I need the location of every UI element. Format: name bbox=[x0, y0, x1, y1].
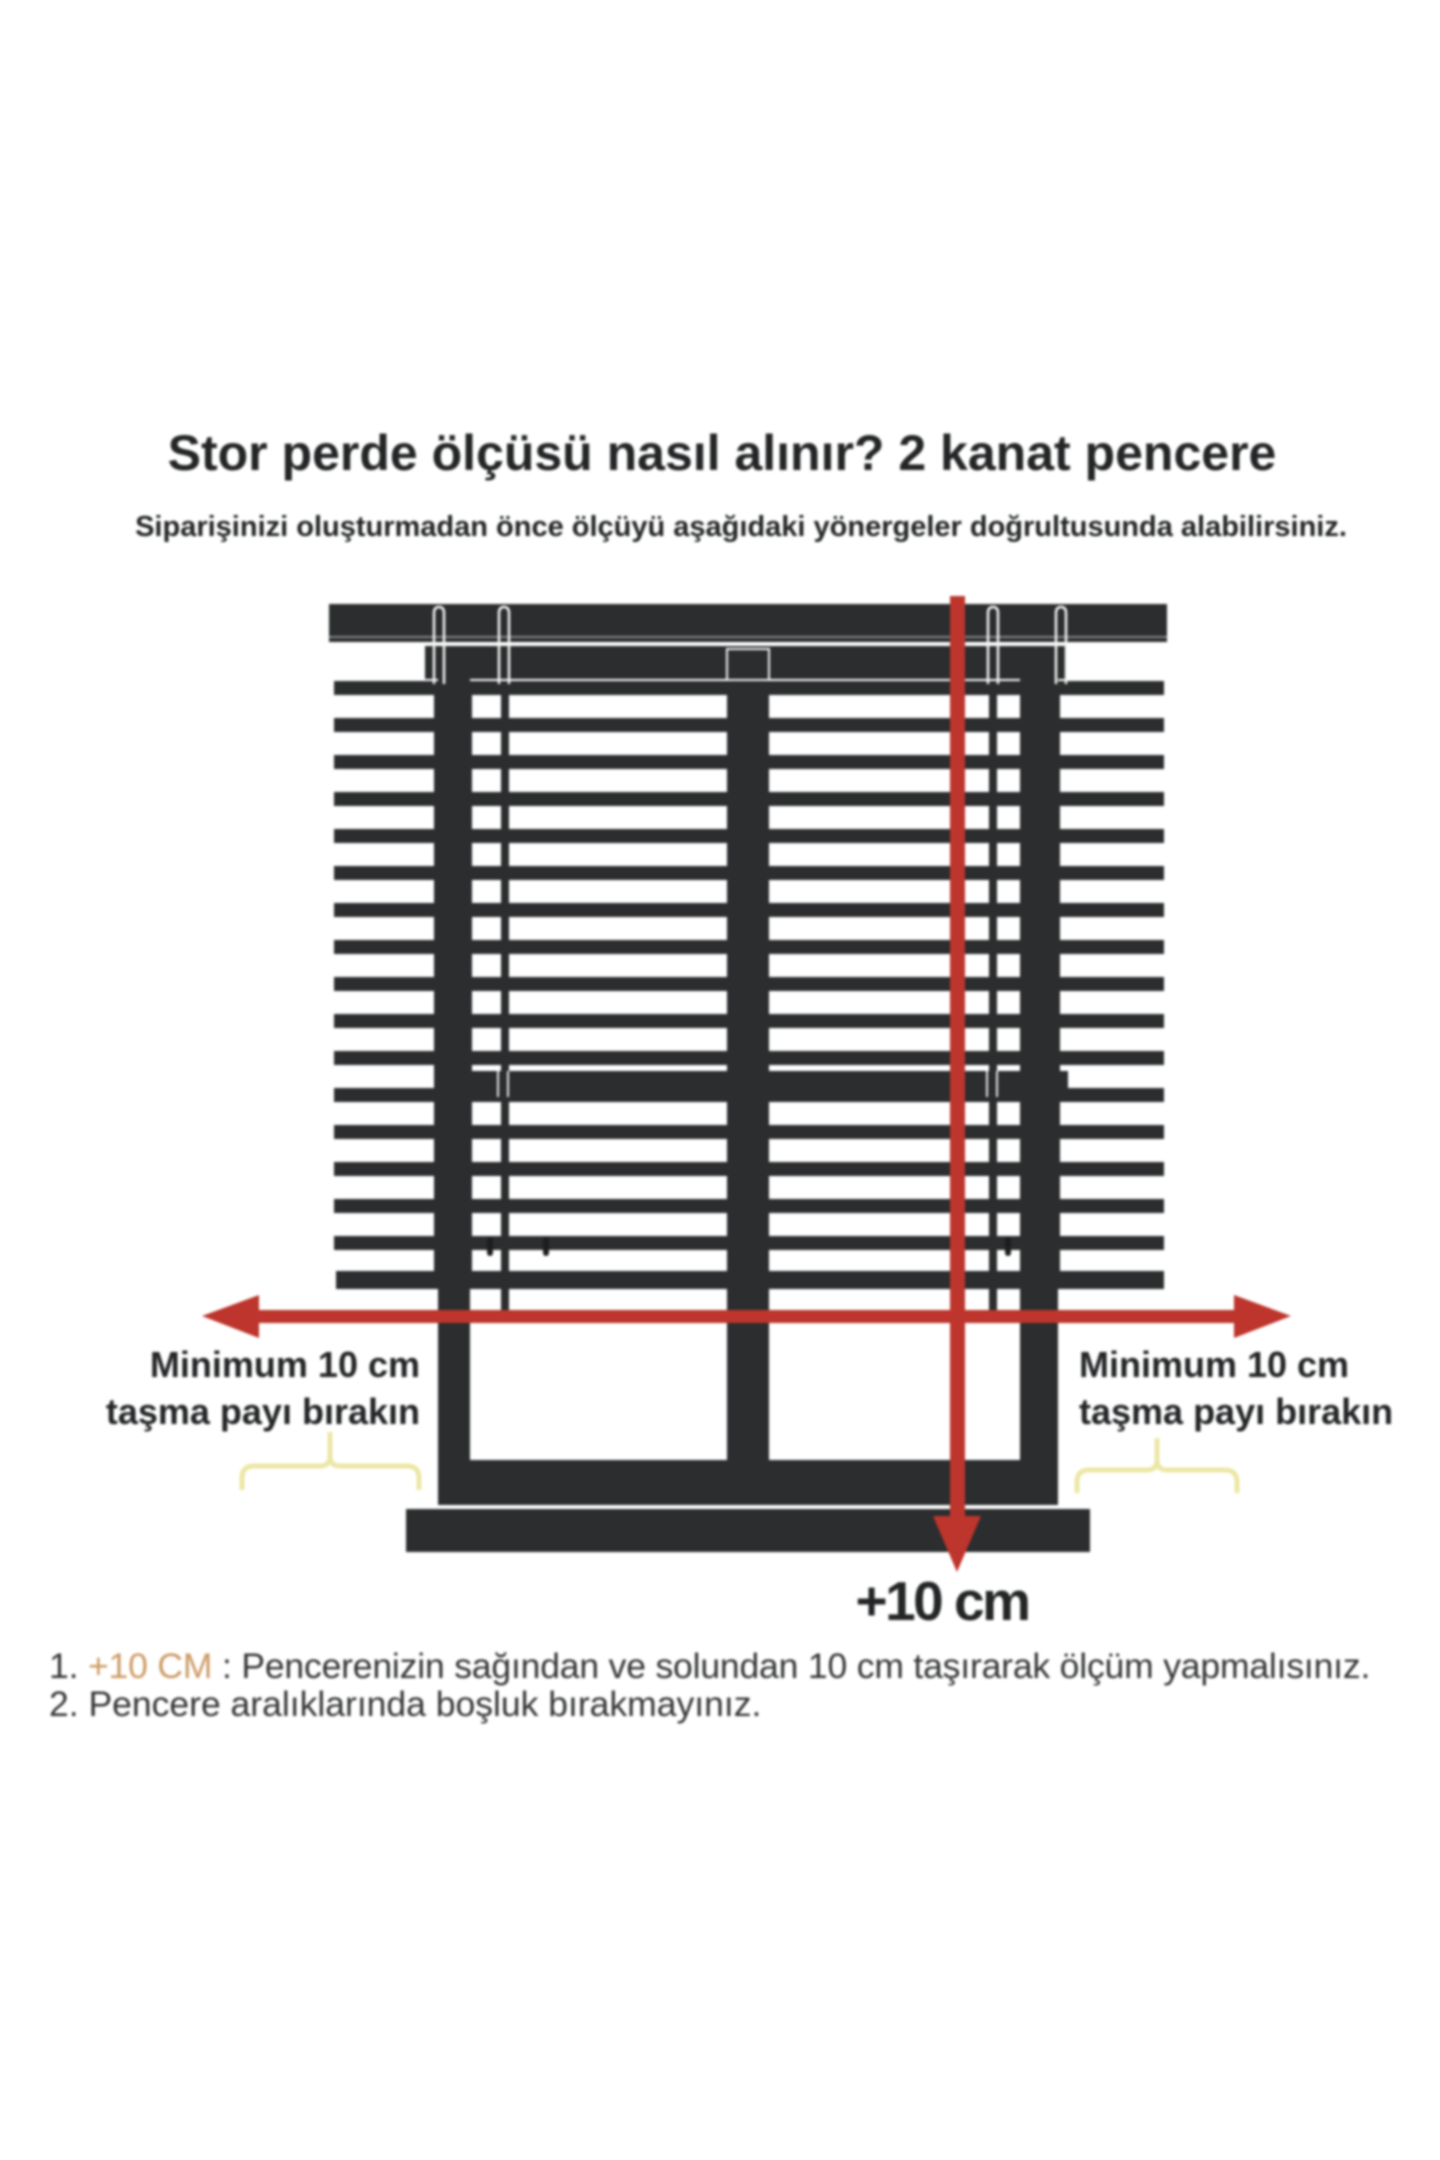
svg-text:taşma payı bırakın: taşma payı bırakın bbox=[1079, 1391, 1393, 1432]
svg-text:2. Pencere aralıklarında boşlu: 2. Pencere aralıklarında boşluk bırakmay… bbox=[49, 1684, 761, 1724]
svg-text:Minimum 10 cm: Minimum 10 cm bbox=[1079, 1344, 1349, 1385]
svg-text:1. +10 CM : Pencerenizin sağın: 1. +10 CM : Pencerenizin sağından ve sol… bbox=[49, 1646, 1370, 1686]
svg-text:+10 cm: +10 cm bbox=[855, 1570, 1028, 1632]
svg-text:taşma payı bırakın: taşma payı bırakın bbox=[106, 1391, 420, 1432]
svg-text:Minimum 10 cm: Minimum 10 cm bbox=[150, 1344, 420, 1385]
svg-text:Stor perde ölçüsü nasıl alınır: Stor perde ölçüsü nasıl alınır? 2 kanat … bbox=[168, 425, 1277, 481]
svg-text:Siparişinizi oluşturmadan önce: Siparişinizi oluşturmadan önce ölçüyü aş… bbox=[135, 511, 1347, 543]
